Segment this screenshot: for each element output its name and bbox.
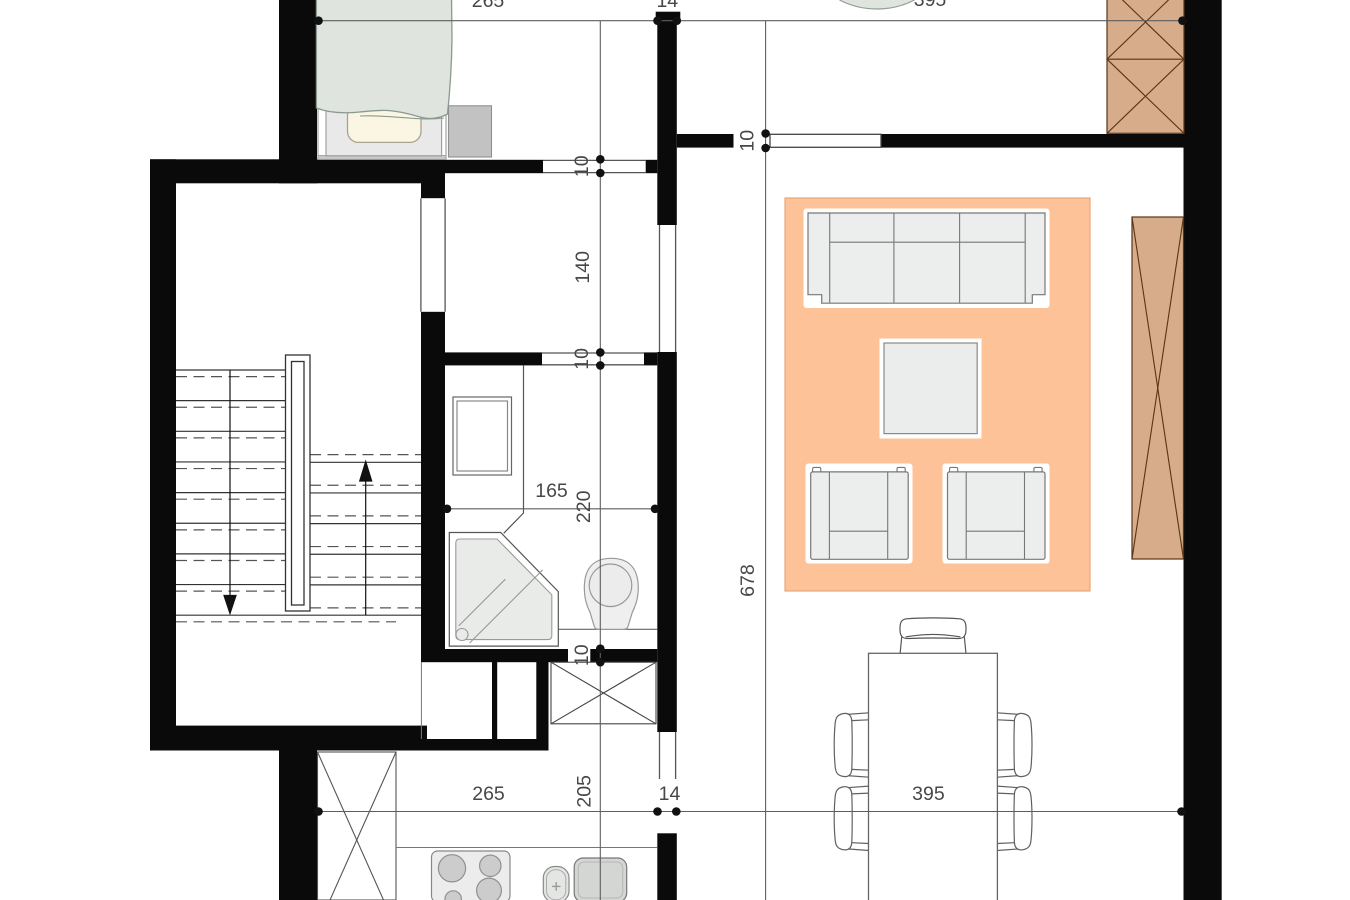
svg-text:10: 10	[571, 155, 593, 177]
svg-text:265: 265	[472, 783, 505, 805]
svg-text:10: 10	[571, 644, 593, 666]
svg-text:10: 10	[571, 348, 593, 370]
svg-text:14: 14	[656, 0, 678, 12]
svg-text:395: 395	[914, 0, 947, 11]
svg-text:205: 205	[574, 775, 596, 808]
svg-text:140: 140	[572, 251, 594, 284]
svg-text:10: 10	[737, 130, 759, 152]
svg-text:395: 395	[912, 783, 945, 805]
svg-text:165: 165	[535, 480, 568, 502]
svg-text:265: 265	[472, 0, 505, 12]
svg-text:220: 220	[573, 490, 595, 523]
svg-text:14: 14	[659, 783, 681, 805]
svg-text:678: 678	[737, 564, 759, 597]
